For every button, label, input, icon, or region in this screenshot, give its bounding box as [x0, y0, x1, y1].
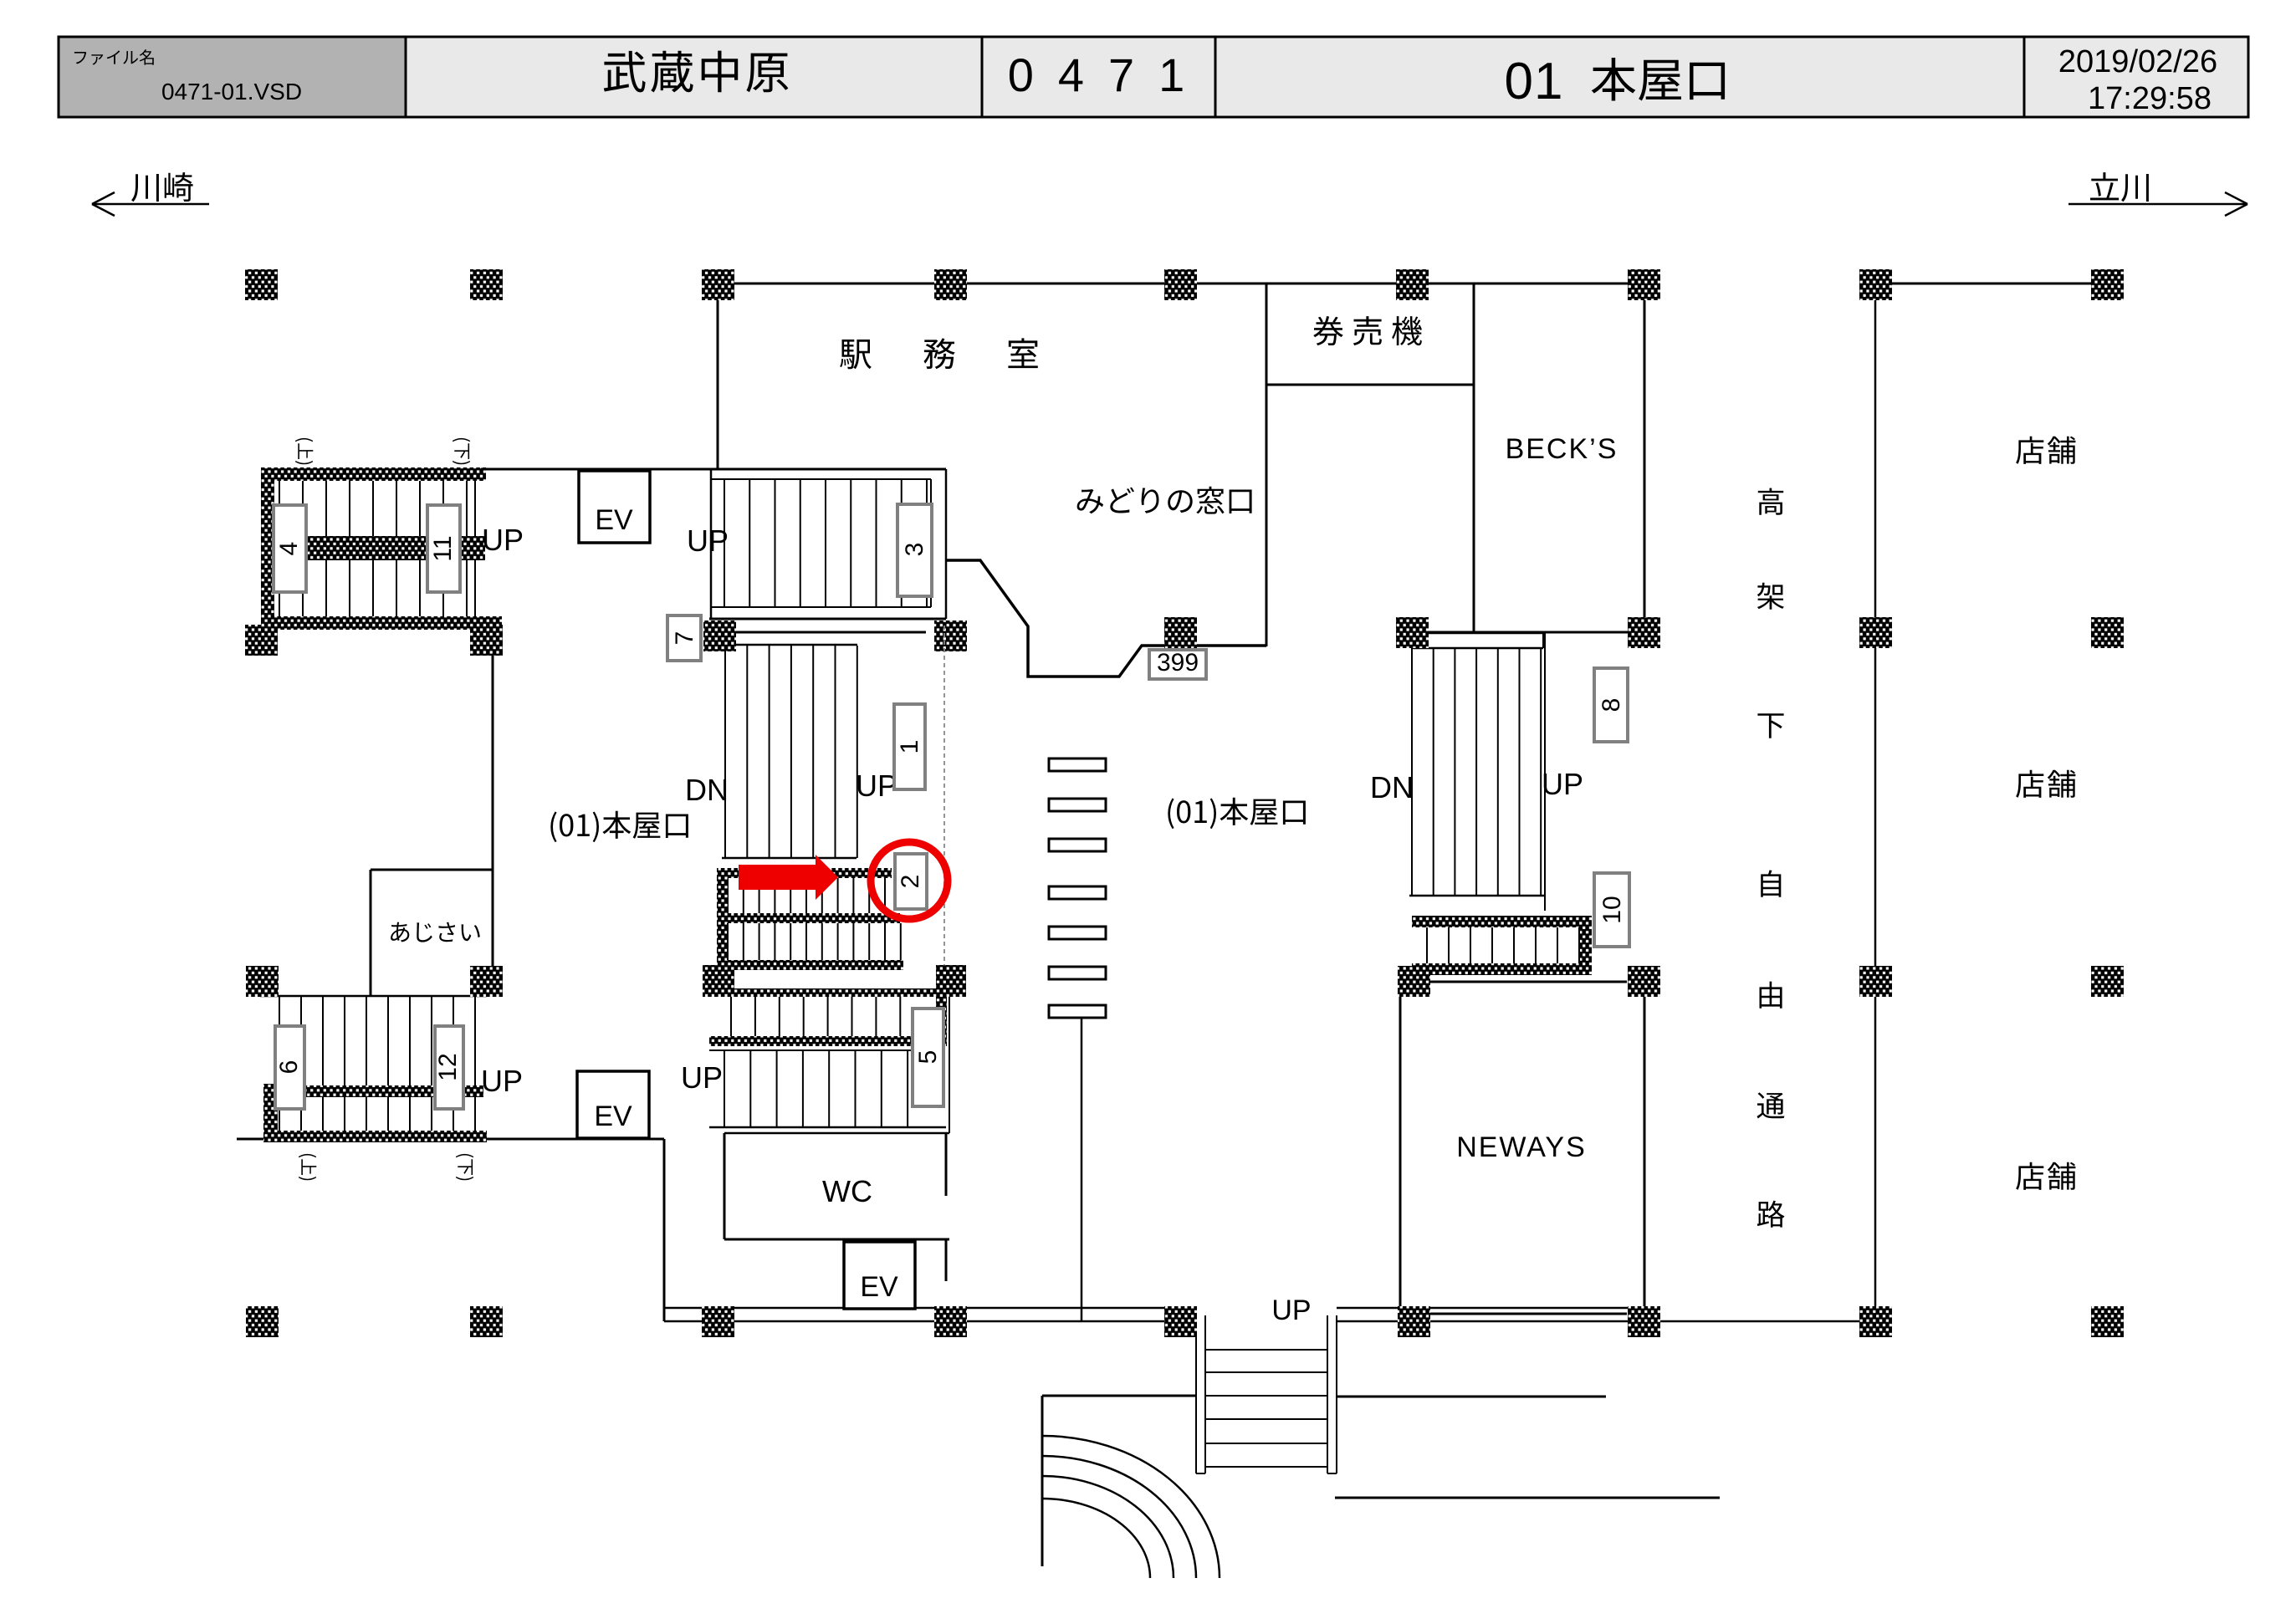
svg-text:8: 8	[1598, 698, 1625, 712]
svg-text:0471-01.VSD: 0471-01.VSD	[161, 79, 302, 105]
svg-text:UP: UP	[482, 523, 524, 557]
svg-text:UP: UP	[481, 1064, 523, 1098]
svg-text:3: 3	[901, 543, 928, 557]
svg-text:WC: WC	[822, 1174, 872, 1208]
svg-text:2: 2	[897, 875, 924, 889]
svg-text:NEWAYS: NEWAYS	[1456, 1131, 1587, 1163]
svg-text:0471: 0471	[1008, 49, 1209, 101]
svg-text:10: 10	[1598, 896, 1626, 923]
svg-text:01: 01	[1505, 53, 1564, 110]
svg-text:12: 12	[434, 1053, 462, 1080]
svg-text:BECK’S: BECK’S	[1506, 433, 1618, 465]
svg-text:17:29:58: 17:29:58	[2088, 81, 2212, 116]
svg-text:4: 4	[275, 542, 303, 556]
svg-text:1: 1	[896, 740, 923, 754]
svg-text:EV: EV	[595, 504, 633, 536]
svg-text:DN: DN	[1370, 770, 1414, 804]
svg-text:UP: UP	[687, 523, 729, 558]
svg-text:7: 7	[671, 631, 698, 646]
svg-text:5: 5	[914, 1050, 942, 1065]
svg-text:6: 6	[275, 1060, 303, 1075]
svg-text:EV: EV	[594, 1101, 632, 1132]
svg-text:UP: UP	[1542, 767, 1583, 801]
svg-text:11: 11	[429, 535, 457, 561]
svg-text:UP: UP	[856, 769, 897, 803]
svg-text:DN: DN	[685, 773, 729, 807]
svg-text:EV: EV	[860, 1271, 898, 1303]
svg-text:2019/02/26: 2019/02/26	[2058, 44, 2217, 79]
svg-text:UP: UP	[1271, 1295, 1311, 1326]
svg-text:399: 399	[1157, 649, 1199, 677]
svg-text:UP: UP	[681, 1060, 723, 1095]
